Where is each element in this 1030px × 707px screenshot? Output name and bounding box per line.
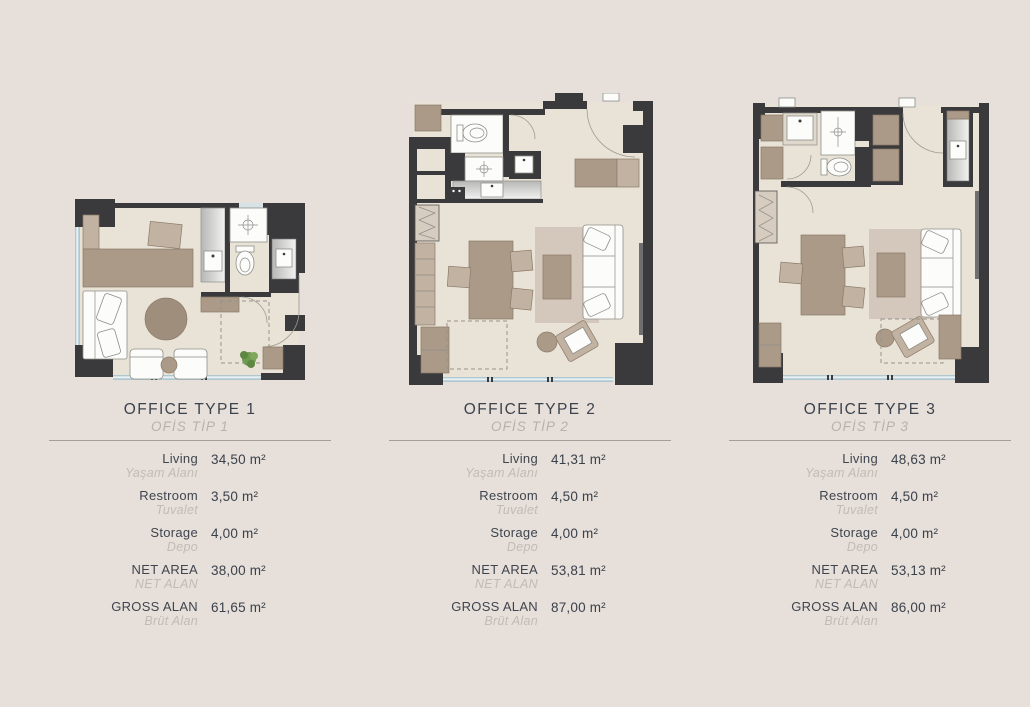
area-table: LivingYaşam Alanı 34,50 m² RestroomTuval… <box>40 453 340 638</box>
row-value: 86,00 m² <box>878 601 946 614</box>
stool <box>876 329 894 347</box>
floor-plans-page: OFFICE TYPE 1 OFİS TİP 1 LivingYaşam Ala… <box>0 0 1030 707</box>
sofa-icon <box>583 225 623 319</box>
row-value: 4,00 m² <box>538 527 598 540</box>
row-label-tr: Depo <box>380 541 538 553</box>
area-row-storage: StorageDepo 4,00 m² <box>720 527 1020 553</box>
divider <box>729 440 1011 441</box>
chair <box>779 262 803 284</box>
toilet-icon <box>457 124 487 142</box>
cabinet <box>761 115 783 141</box>
plan-title: OFFICE TYPE 1 <box>40 401 340 419</box>
wardrobe <box>869 111 903 185</box>
kitchen-sink-icon <box>950 141 966 159</box>
row-value: 38,00 m² <box>198 564 266 577</box>
kitchen-sink-icon <box>204 251 222 271</box>
toilet-icon <box>821 158 851 176</box>
row-value: 4,00 m² <box>878 527 938 540</box>
chair <box>447 266 470 287</box>
area-row-living: LivingYaşam Alanı 48,63 m² <box>720 453 1020 479</box>
row-label-en: Restroom <box>380 490 538 502</box>
row-label-tr: Tuvalet <box>40 504 198 516</box>
floor-plan-office-type-2 <box>407 93 653 385</box>
row-value: 34,50 m² <box>198 453 266 466</box>
area-row-restroom: RestroomTuvalet 4,50 m² <box>380 490 680 516</box>
area-row-gross-area: GROSS ALANBrüt Alan 61,65 m² <box>40 601 340 627</box>
row-label-tr: Tuvalet <box>720 504 878 516</box>
row-label-en: Living <box>720 453 878 465</box>
divider <box>49 440 331 441</box>
divider <box>389 440 671 441</box>
row-value: 4,50 m² <box>538 490 598 503</box>
plan-card-office-type-3: OFFICE TYPE 3 OFİS TİP 3 LivingYaşam Ala… <box>720 0 1020 707</box>
row-label-en: NET AREA <box>720 564 878 576</box>
kitchenette <box>943 109 973 187</box>
plan-card-office-type-1: OFFICE TYPE 1 OFİS TİP 1 LivingYaşam Ala… <box>40 0 340 707</box>
window-strips <box>783 375 955 380</box>
coffee-table <box>543 255 571 299</box>
area-table: LivingYaşam Alanı 48,63 m² RestroomTuval… <box>720 453 1020 638</box>
plan-title: OFFICE TYPE 2 <box>380 401 680 419</box>
dining-table <box>801 235 845 315</box>
plan-title: OFFICE TYPE 3 <box>720 401 1020 419</box>
row-label-tr: Yaşam Alanı <box>40 467 198 479</box>
armchair-icon <box>174 349 207 379</box>
row-value: 87,00 m² <box>538 601 606 614</box>
row-label-en: Restroom <box>40 490 198 502</box>
area-row-gross-area: GROSS ALANBrüt Alan 86,00 m² <box>720 601 1020 627</box>
plan-subtitle: OFİS TİP 2 <box>380 419 680 434</box>
row-label-en: Storage <box>380 527 538 539</box>
area-row-restroom: RestroomTuvalet 4,50 m² <box>720 490 1020 516</box>
cabinet <box>939 315 961 359</box>
row-label-tr: NET ALAN <box>40 578 198 590</box>
row-label-en: Storage <box>720 527 878 539</box>
area-row-living: LivingYaşam Alanı 41,31 m² <box>380 453 680 479</box>
row-label-tr: Depo <box>40 541 198 553</box>
chair <box>842 286 865 308</box>
row-label-tr: NET ALAN <box>720 578 878 590</box>
cabinet <box>263 347 283 369</box>
row-value: 3,50 m² <box>198 490 258 503</box>
row-label-tr: Tuvalet <box>380 504 538 516</box>
exterior-fixture <box>779 98 795 107</box>
cabinet <box>201 297 239 312</box>
row-label-en: Living <box>40 453 198 465</box>
area-row-living: LivingYaşam Alanı 34,50 m² <box>40 453 340 479</box>
area-row-net-area: NET AREANET ALAN 53,13 m² <box>720 564 1020 590</box>
row-value: 41,31 m² <box>538 453 606 466</box>
exterior-fixture <box>899 98 915 107</box>
stool <box>537 332 557 352</box>
row-value: 61,65 m² <box>198 601 266 614</box>
wardrobe <box>415 205 439 241</box>
row-label-en: GROSS ALAN <box>720 601 878 613</box>
cabinet <box>761 147 783 179</box>
row-label-en: Living <box>380 453 538 465</box>
plan-card-office-type-2: OFFICE TYPE 2 OFİS TİP 2 LivingYaşam Ala… <box>380 0 680 707</box>
row-value: 4,00 m² <box>198 527 258 540</box>
row-label-tr: NET ALAN <box>380 578 538 590</box>
round-table <box>145 298 187 340</box>
area-row-gross-area: GROSS ALANBrüt Alan 87,00 m² <box>380 601 680 627</box>
sideboard <box>575 159 639 187</box>
row-value: 48,63 m² <box>878 453 946 466</box>
cabinet <box>83 215 99 249</box>
floor-plan-office-type-3 <box>751 95 989 383</box>
row-label-tr: Yaşam Alanı <box>380 467 538 479</box>
chair <box>842 246 865 268</box>
area-row-net-area: NET AREANET ALAN 38,00 m² <box>40 564 340 590</box>
kitchen-counter <box>201 208 225 282</box>
coffee-table <box>877 253 905 297</box>
armchair-icon <box>130 349 163 379</box>
area-table: LivingYaşam Alanı 41,31 m² RestroomTuval… <box>380 453 680 638</box>
column <box>415 105 441 131</box>
row-label-tr: Brüt Alan <box>380 615 538 627</box>
washbasin-icon <box>515 156 533 173</box>
chair <box>510 288 533 310</box>
row-label-en: NET AREA <box>40 564 198 576</box>
kitchen-counter <box>449 181 543 203</box>
sofa-icon <box>83 291 127 359</box>
row-value: 53,13 m² <box>878 564 946 577</box>
toilet-icon <box>236 246 254 275</box>
row-label-tr: Depo <box>720 541 878 553</box>
row-label-en: GROSS ALAN <box>40 601 198 613</box>
desk <box>83 249 193 287</box>
window-strips <box>443 377 613 382</box>
row-value: 53,81 m² <box>538 564 606 577</box>
area-row-net-area: NET AREANET ALAN 53,81 m² <box>380 564 680 590</box>
chair <box>510 250 533 272</box>
row-label-en: Storage <box>40 527 198 539</box>
exterior-fixture <box>603 93 619 101</box>
row-label-en: Restroom <box>720 490 878 502</box>
plan-subtitle: OFİS TİP 1 <box>40 419 340 434</box>
area-row-restroom: RestroomTuvalet 3,50 m² <box>40 490 340 516</box>
area-row-storage: StorageDepo 4,00 m² <box>40 527 340 553</box>
row-label-tr: Brüt Alan <box>40 615 198 627</box>
dining-table <box>469 241 513 319</box>
area-row-storage: StorageDepo 4,00 m² <box>380 527 680 553</box>
washbasin-icon <box>276 249 292 267</box>
desk-chair <box>148 221 182 248</box>
sofa-icon <box>921 229 961 317</box>
stool <box>161 357 177 373</box>
row-label-en: GROSS ALAN <box>380 601 538 613</box>
row-label-en: NET AREA <box>380 564 538 576</box>
row-value: 4,50 m² <box>878 490 938 503</box>
row-label-tr: Brüt Alan <box>720 615 878 627</box>
plan-subtitle: OFİS TİP 3 <box>720 419 1020 434</box>
row-label-tr: Yaşam Alanı <box>720 467 878 479</box>
floor-plan-office-type-1 <box>73 199 307 383</box>
